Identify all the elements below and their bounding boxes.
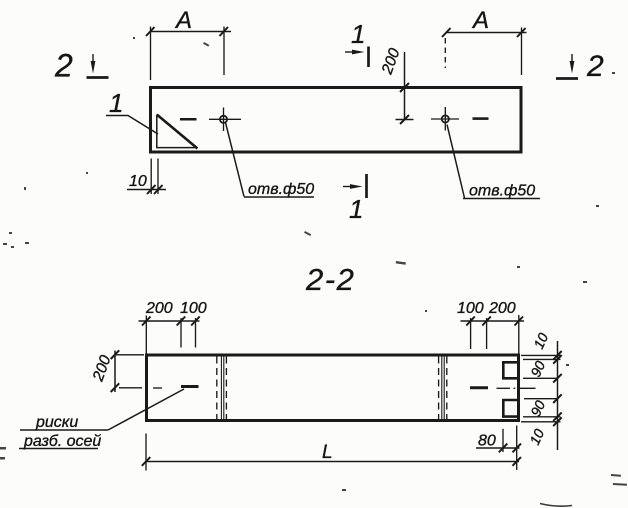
- svg-text:80: 80: [478, 433, 496, 450]
- svg-text:10: 10: [526, 426, 547, 447]
- svg-text:A: A: [471, 7, 489, 34]
- svg-text:L: L: [322, 442, 333, 463]
- svg-text:200: 200: [488, 300, 516, 317]
- svg-text:10: 10: [530, 330, 551, 351]
- svg-text:1: 1: [351, 19, 365, 49]
- svg-text:200: 200: [145, 300, 173, 317]
- svg-text:90: 90: [527, 358, 548, 379]
- svg-text:2: 2: [586, 50, 604, 83]
- svg-text:1: 1: [349, 194, 363, 224]
- svg-text:2: 2: [54, 48, 73, 84]
- svg-text:отв.ф50: отв.ф50: [248, 181, 314, 198]
- svg-text:200: 200: [378, 46, 403, 77]
- svg-text:A: A: [174, 7, 192, 34]
- svg-text:2-2: 2-2: [305, 262, 355, 297]
- svg-text:разб. осей: разб. осей: [23, 433, 101, 450]
- svg-text:риски: риски: [35, 414, 78, 431]
- svg-text:90: 90: [527, 398, 548, 419]
- svg-text:отв.ф50: отв.ф50: [469, 183, 535, 200]
- svg-text:100: 100: [180, 300, 207, 317]
- svg-text:1: 1: [109, 88, 123, 118]
- svg-text:10: 10: [129, 173, 147, 190]
- svg-text:100: 100: [457, 300, 484, 317]
